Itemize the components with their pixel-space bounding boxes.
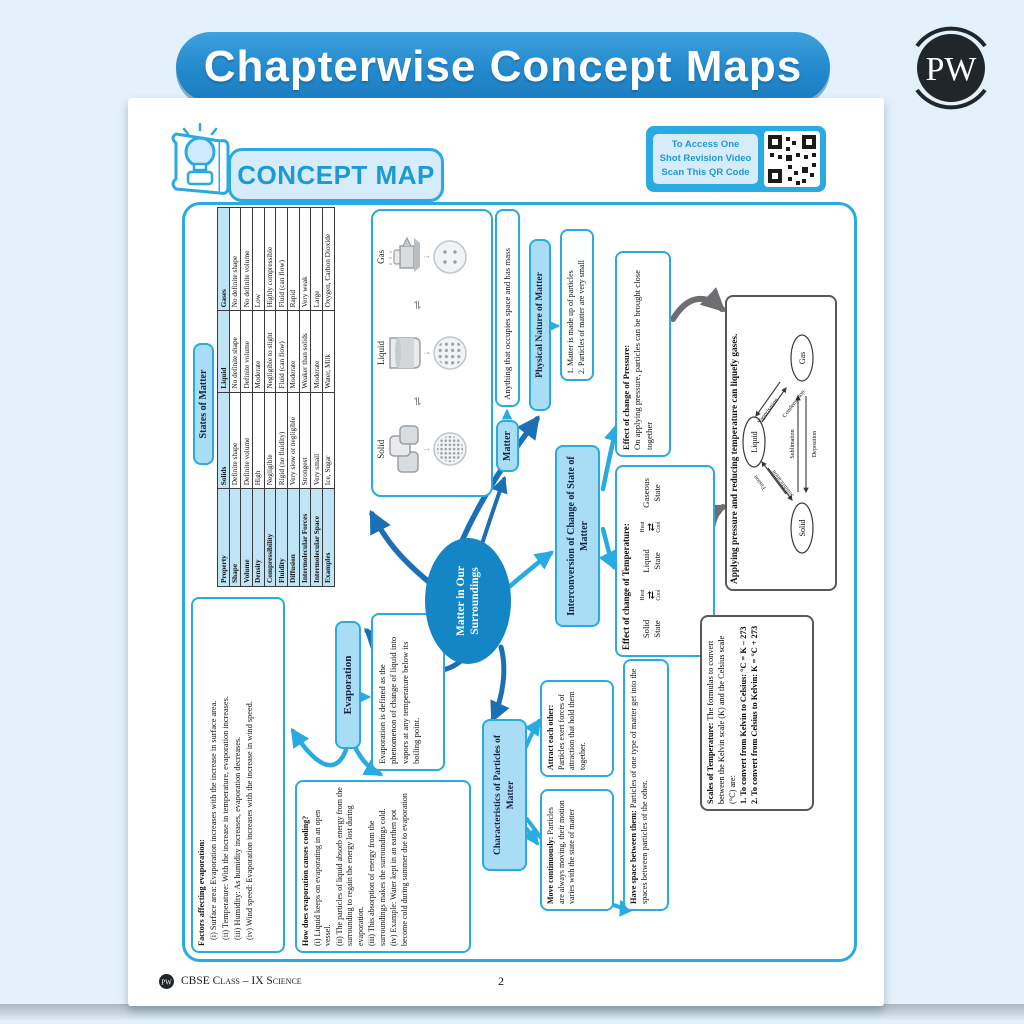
down-arrow-icon: ↓ bbox=[422, 255, 431, 260]
factors-evaporation-box: Factors affecting evaporation: (i) Surfa… bbox=[191, 597, 285, 953]
cooling-list: (i) Liquid keeps on evaporating in an op… bbox=[313, 787, 411, 946]
svg-text:Solidification: Solidification bbox=[770, 469, 795, 499]
ice-cubes-icon bbox=[386, 416, 422, 482]
states-of-matter-table: PropertySolidsLiquidGasesShapeDefinite s… bbox=[217, 207, 335, 587]
table-header-cell: Property bbox=[218, 489, 230, 587]
space-between-box: Have space between them: Particles of on… bbox=[623, 659, 669, 911]
table-cell: Definite volume bbox=[241, 392, 253, 489]
down-arrow-icon: ↓ bbox=[422, 351, 431, 356]
liquefy-gases-box: Applying pressure and reducing temperatu… bbox=[725, 295, 837, 591]
pw-logo-icon: PW bbox=[903, 20, 999, 116]
table-cell: Highly compressible bbox=[264, 208, 276, 311]
matter-definition-box: Anything that occupies space and has mas… bbox=[495, 209, 520, 407]
concept-map-frame: Factors affecting evaporation: (i) Surfa… bbox=[182, 202, 857, 962]
book-page: CONCEPT MAP To Access One Shot Revision … bbox=[128, 98, 884, 1006]
qr-code bbox=[764, 131, 820, 187]
central-topic-ellipse: Matter in Our Surroundings bbox=[425, 538, 511, 664]
table-row: ShapeDefinite shapeNo definite shapeNo d… bbox=[229, 208, 241, 587]
table-cell: Intermolecular Forces bbox=[299, 489, 311, 587]
table-cell: Fluid (can flow) bbox=[276, 208, 288, 311]
table-row: ExamplesIce, SugarWater, MilkOxygen, Car… bbox=[322, 208, 334, 587]
table-cell: Oxygen, Carbon Dioxide bbox=[322, 208, 334, 311]
table-cell: Moderate bbox=[252, 311, 264, 392]
interconversion-heading: Interconversion of Change of State of Ma… bbox=[555, 445, 600, 627]
characteristics-heading: Characteristics of Particles of Matter bbox=[482, 719, 527, 871]
heat-cool-arrow: Heat ⇄ Cool bbox=[641, 589, 663, 600]
gas-illustration: Gas ↓ bbox=[376, 217, 488, 297]
list-item: (iii) Humidity: As humidity increases, e… bbox=[233, 604, 244, 946]
list-item: (iv) Wind speed: Evaporation increases w… bbox=[245, 604, 256, 946]
table-cell: Negligible to slight bbox=[264, 311, 276, 392]
table-row: Intermolecular ForcesStrongestWeaker tha… bbox=[299, 208, 311, 587]
table-header-cell: Solids bbox=[218, 392, 230, 489]
states-table-grid: PropertySolidsLiquidGasesShapeDefinite s… bbox=[217, 207, 335, 587]
table-cell: Very weak bbox=[299, 208, 311, 311]
liquid-illustration: Liquid ↓ bbox=[376, 313, 488, 393]
svg-text:Solid: Solid bbox=[798, 520, 807, 537]
table-row: VolumeDefinite volumeDefinite volumeNo d… bbox=[241, 208, 253, 587]
page-edge-shadow bbox=[0, 1004, 1024, 1020]
list-item: (ii) Temperature: With the increase in t… bbox=[221, 604, 232, 946]
table-cell: Intermolecular Space bbox=[311, 489, 323, 587]
table-row: Intermolecular SpaceVery smallModerateLa… bbox=[311, 208, 323, 587]
publisher-logo: PW bbox=[903, 20, 999, 121]
table-cell: Moderate bbox=[287, 311, 299, 392]
qr-instructions: To Access One Shot Revision Video Scan T… bbox=[653, 134, 758, 184]
interchange-icon: ⇌ bbox=[411, 300, 424, 309]
move-continuously-box: Move continuously: Particles are always … bbox=[540, 789, 614, 911]
table-cell: Large bbox=[311, 208, 323, 311]
svg-text:Vaporisation: Vaporisation bbox=[757, 397, 780, 425]
table-cell: Low bbox=[252, 208, 264, 311]
table-cell: Ice, Sugar bbox=[322, 392, 334, 489]
book-title-banner: Chapterwise Concept Maps bbox=[176, 32, 830, 102]
table-cell: Examples bbox=[322, 489, 334, 587]
table-cell: No definite volume bbox=[241, 208, 253, 311]
table-cell: Rigid (no fluidity) bbox=[276, 392, 288, 489]
table-row: DensityHighModerateLow bbox=[252, 208, 264, 587]
table-cell: Weaker than solids bbox=[299, 311, 311, 392]
svg-text:Fusion: Fusion bbox=[753, 474, 768, 491]
svg-text:Sublimation: Sublimation bbox=[790, 429, 796, 458]
footer-text: CBSE Class – IX Science bbox=[181, 975, 302, 987]
svg-text:Deposition: Deposition bbox=[812, 431, 818, 457]
list-item: (i) Surface area: Evaporation increases … bbox=[209, 604, 220, 946]
table-cell: Strongest bbox=[299, 392, 311, 489]
attract-each-other-box: Attract each other: Particles exert forc… bbox=[540, 680, 614, 777]
page-footer: PW CBSE Class – IX Science 2 bbox=[158, 970, 854, 992]
list-item: (iv) Example: Water kept in an earthen p… bbox=[389, 787, 410, 946]
list-item: (ii) The particles of liquid absorb ener… bbox=[335, 787, 367, 946]
solid-particles-icon bbox=[431, 430, 469, 468]
svg-text:Condensation: Condensation bbox=[782, 389, 807, 419]
table-cell: Fluid (can flow) bbox=[276, 311, 288, 392]
page: { "page": { "title": "Chapterwise Concep… bbox=[0, 0, 1024, 1024]
page-number: 2 bbox=[498, 974, 504, 989]
table-cell: Very small bbox=[311, 392, 323, 489]
table-cell: Definite shape bbox=[229, 392, 241, 489]
kettle-icon bbox=[386, 224, 422, 290]
table-cell: Very slow or negligible bbox=[287, 392, 299, 489]
list-item: (iii) This absorption of energy from the… bbox=[367, 787, 388, 946]
table-cell: Definite volume bbox=[241, 311, 253, 392]
table-cell: Negligible bbox=[264, 392, 276, 489]
table-cell: Moderate bbox=[311, 311, 323, 392]
glass-icon bbox=[386, 320, 422, 386]
table-cell: Compressibility bbox=[264, 489, 276, 587]
down-arrow-icon: ↓ bbox=[422, 447, 431, 452]
table-cell: Volume bbox=[241, 489, 253, 587]
list-item: (i) Liquid keeps on evaporating in an op… bbox=[313, 787, 334, 946]
factors-list: (i) Surface area: Evaporation increases … bbox=[209, 604, 256, 946]
table-row: FluidityRigid (no fluidity)Fluid (can fl… bbox=[276, 208, 288, 587]
physical-nature-points-box: 1. Matter is made up of particles 2. Par… bbox=[560, 229, 594, 381]
qr-panel: To Access One Shot Revision Video Scan T… bbox=[646, 126, 826, 192]
table-cell: Rapid bbox=[287, 208, 299, 311]
table-cell: Shape bbox=[229, 489, 241, 587]
table-cell: High bbox=[252, 392, 264, 489]
cooling-title: How does evaporation causes cooling? bbox=[301, 787, 312, 946]
table-header-cell: Liquid bbox=[218, 311, 230, 392]
table-cell: No definite shape bbox=[229, 208, 241, 311]
concept-map-badge: CONCEPT MAP bbox=[228, 148, 444, 202]
physical-nature-heading: Physical Nature of Matter bbox=[529, 239, 551, 411]
book-title: Chapterwise Concept Maps bbox=[204, 42, 803, 92]
concept-map-badge-label: CONCEPT MAP bbox=[237, 160, 435, 191]
svg-text:PW: PW bbox=[926, 51, 978, 88]
states-illustration-box: Solid ↓ ⇌ Liquid bbox=[371, 209, 493, 497]
matter-heading: Matter bbox=[496, 420, 519, 472]
table-header-cell: Gases bbox=[218, 208, 230, 311]
effect-of-pressure-box: Effect of change of Pressure: On applyin… bbox=[615, 251, 671, 457]
table-row: CompressibilityNegligibleNegligible to s… bbox=[264, 208, 276, 587]
interchange-icon: ⇌ bbox=[411, 397, 424, 406]
factors-title: Factors affecting evaporation: bbox=[197, 604, 208, 946]
footer-logo-icon: PW bbox=[158, 973, 175, 990]
states-of-matter-title: States of Matter bbox=[193, 343, 214, 465]
gas-particles-icon bbox=[431, 238, 469, 276]
table-cell: No definite shape bbox=[229, 311, 241, 392]
heat-cool-arrow: Heat ⇄ Cool bbox=[641, 521, 663, 532]
evaporation-heading: Evaporation bbox=[335, 621, 361, 749]
table-cell: Diffusion bbox=[287, 489, 299, 587]
concept-map-canvas: Factors affecting evaporation: (i) Surfa… bbox=[185, 202, 857, 959]
svg-text:PW: PW bbox=[161, 978, 172, 986]
table-cell: Fluidity bbox=[276, 489, 288, 587]
state-triangle-diagram: Liquid Solid Gas Fusion Solidification V… bbox=[740, 300, 822, 584]
table-cell: Density bbox=[252, 489, 264, 587]
liquid-particles-icon bbox=[431, 334, 469, 372]
temperature-scales-box: Scales of Temperature: The formulas to c… bbox=[700, 615, 814, 811]
state-change-row: Solid State Heat ⇄ Cool Liquid State Hea… bbox=[641, 472, 663, 650]
evaporation-cooling-box: How does evaporation causes cooling? (i)… bbox=[295, 780, 471, 953]
table-cell: Water, Milk bbox=[322, 311, 334, 392]
svg-text:Gas: Gas bbox=[798, 352, 807, 364]
solid-illustration: Solid ↓ bbox=[376, 409, 488, 489]
svg-text:Liquid: Liquid bbox=[750, 431, 759, 452]
table-row: DiffusionVery slow or negligibleModerate… bbox=[287, 208, 299, 587]
